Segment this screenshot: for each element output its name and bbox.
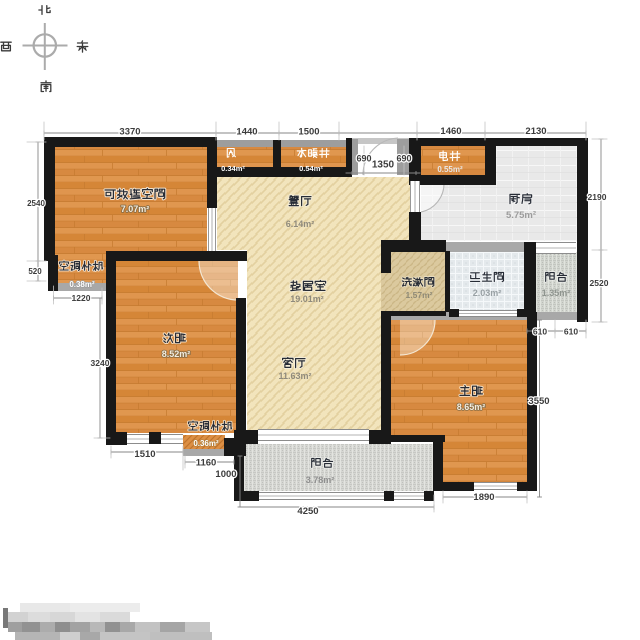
svg-text:5.75m²: 5.75m²	[506, 210, 536, 221]
svg-text:0.36m²: 0.36m²	[193, 439, 219, 448]
svg-text:3.78m²: 3.78m²	[306, 475, 335, 485]
svg-text:0.38m²: 0.38m²	[69, 280, 95, 289]
svg-text:8.65m²: 8.65m²	[457, 402, 486, 412]
svg-text:6.14m²: 6.14m²	[286, 219, 315, 229]
svg-text:19.01m²: 19.01m²	[290, 294, 324, 304]
svg-text:2190: 2190	[588, 192, 607, 202]
svg-text:7.07m²: 7.07m²	[121, 204, 150, 214]
svg-text:610: 610	[564, 327, 578, 337]
svg-text:4250: 4250	[297, 506, 318, 517]
svg-text:0.55m²: 0.55m²	[437, 165, 463, 174]
svg-text:11.63m²: 11.63m²	[278, 371, 311, 381]
svg-text:1510: 1510	[134, 449, 155, 460]
svg-text:8.52m²: 8.52m²	[162, 349, 191, 359]
svg-text:1890: 1890	[473, 492, 494, 503]
svg-text:610: 610	[533, 327, 547, 337]
svg-text:3550: 3550	[528, 396, 549, 407]
svg-text:3240: 3240	[91, 358, 110, 368]
svg-text:1220: 1220	[72, 293, 91, 303]
svg-text:1.57m²: 1.57m²	[406, 290, 433, 300]
svg-text:0.54m²: 0.54m²	[299, 164, 323, 173]
svg-text:2.03m²: 2.03m²	[473, 288, 502, 298]
svg-text:2130: 2130	[525, 126, 546, 137]
svg-text:1460: 1460	[440, 126, 461, 137]
svg-text:2540: 2540	[27, 199, 45, 208]
svg-text:1500: 1500	[298, 127, 319, 138]
svg-text:1160: 1160	[196, 458, 217, 469]
svg-text:1.35m²: 1.35m²	[542, 288, 571, 298]
svg-text:690: 690	[396, 154, 411, 164]
svg-text:2520: 2520	[590, 278, 609, 288]
svg-text:3370: 3370	[119, 127, 140, 138]
svg-text:1440: 1440	[236, 127, 257, 138]
svg-text:520: 520	[28, 267, 42, 276]
svg-text:1350: 1350	[372, 160, 395, 171]
svg-text:1000: 1000	[215, 469, 236, 480]
svg-text:0.34m²: 0.34m²	[221, 164, 245, 173]
svg-text:690: 690	[356, 154, 371, 164]
